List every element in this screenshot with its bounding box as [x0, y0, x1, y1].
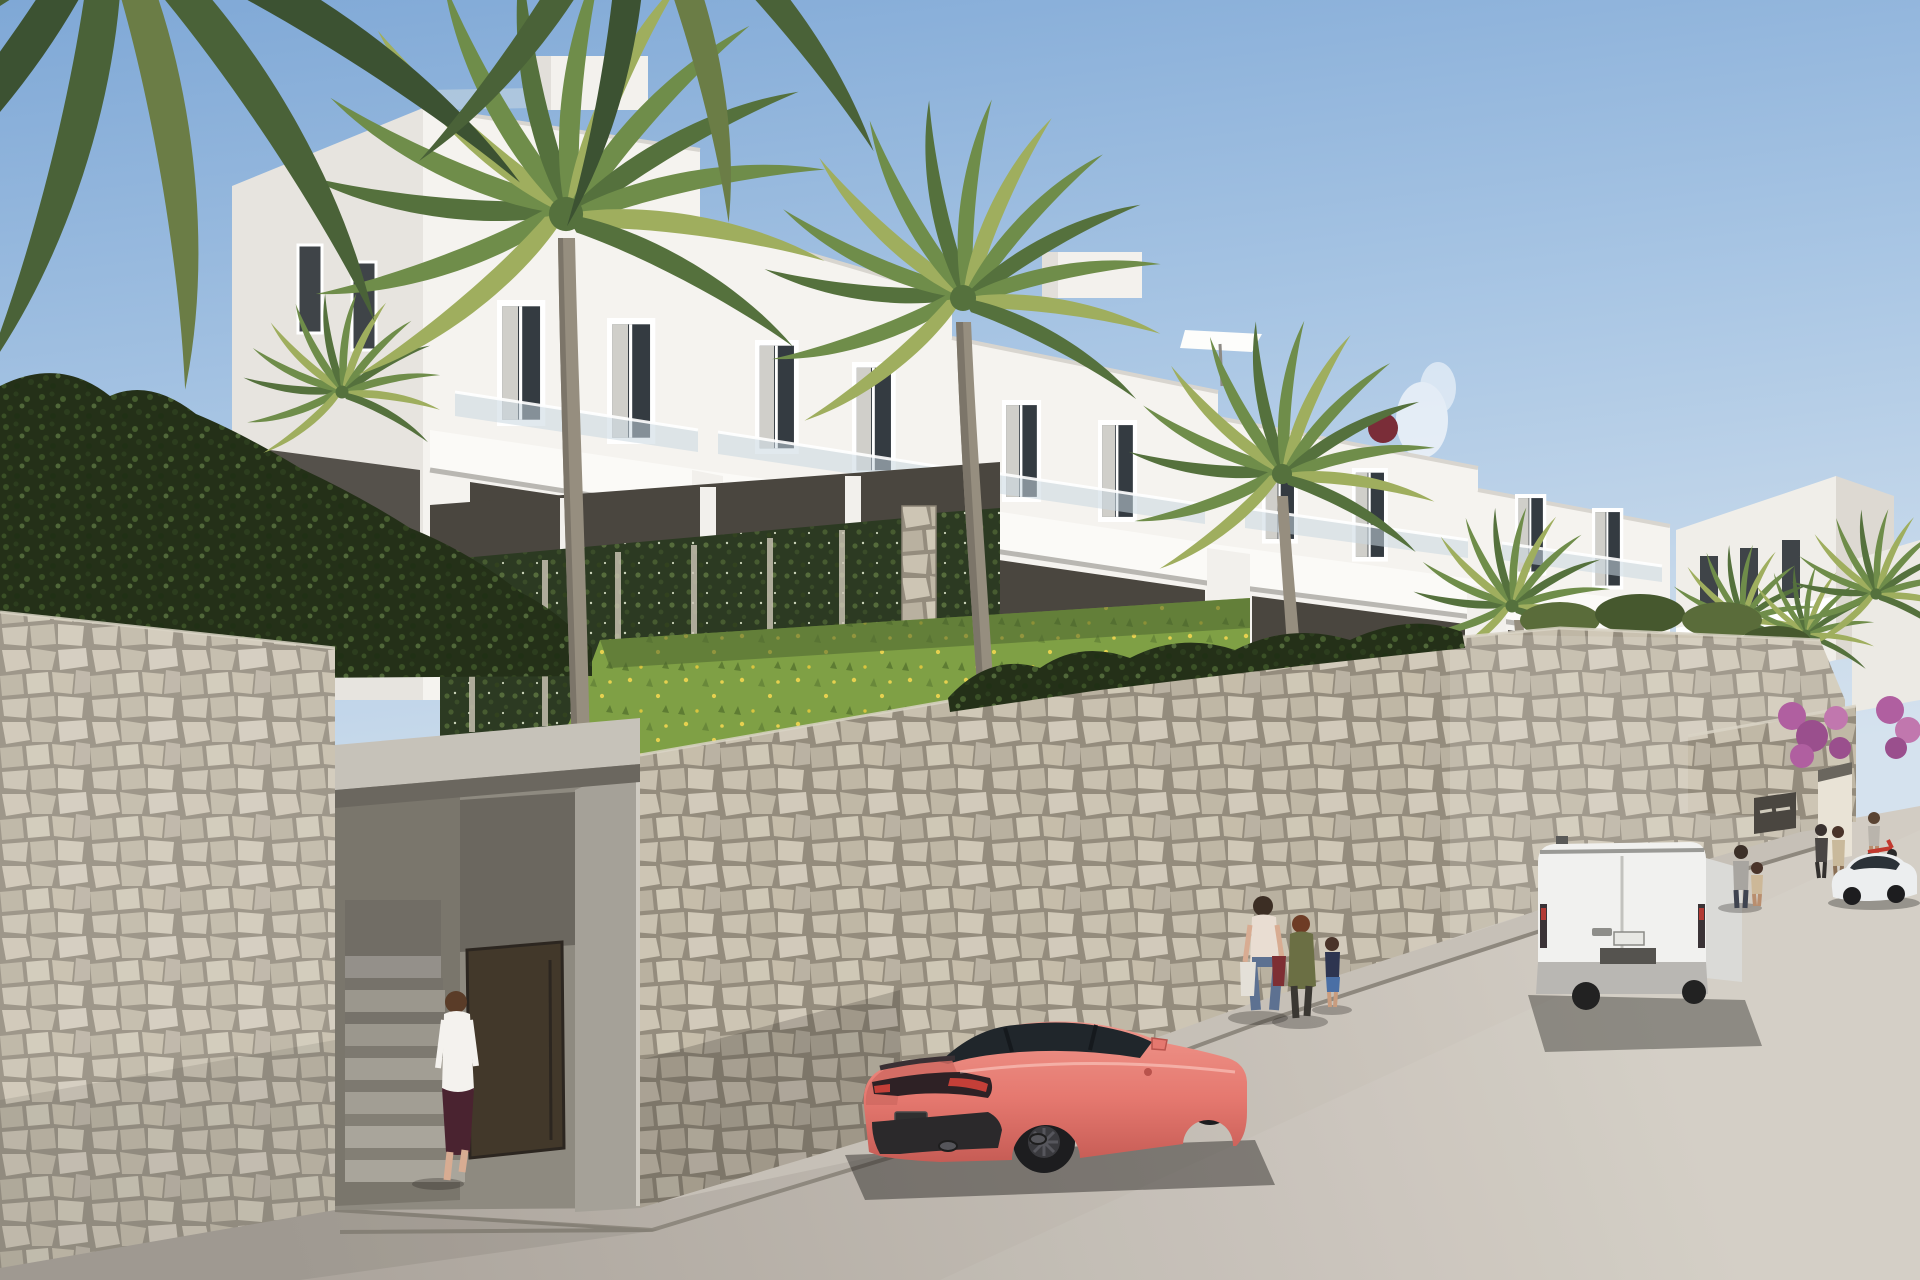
child-body [1751, 875, 1763, 894]
figure-body [1868, 826, 1880, 846]
stair-step [345, 956, 441, 978]
figure-head [1734, 845, 1748, 859]
van-wheel [1682, 980, 1706, 1004]
cloud-puff [1420, 362, 1456, 414]
scene [0, 0, 1920, 1280]
van-roof-trim [1540, 850, 1704, 852]
window [1592, 508, 1623, 590]
stair-riser [345, 1080, 455, 1092]
figure-head [1292, 915, 1310, 933]
child-head [1751, 862, 1763, 874]
child-shorts [1326, 977, 1340, 992]
van-bumper-step [1600, 948, 1656, 964]
shopping-bag [1240, 962, 1256, 996]
stair-riser [345, 1012, 447, 1024]
wall-sign-plaque [1754, 792, 1796, 834]
figure-head [1868, 812, 1880, 824]
sedan-wheel [1843, 887, 1861, 905]
figure-head [1815, 824, 1827, 836]
car-exhaust [939, 1141, 957, 1151]
figure-head [1253, 896, 1273, 916]
van-taillight-red [1699, 908, 1704, 920]
van-bumper [1536, 962, 1708, 994]
figure-body [1815, 838, 1828, 862]
shopping-bag-red [1272, 956, 1286, 986]
figure-head [1325, 937, 1339, 951]
car-exhaust [1030, 1134, 1046, 1144]
figure-shadow [1272, 1015, 1328, 1029]
figure-jacket [1288, 932, 1316, 990]
stair-riser [345, 1046, 451, 1058]
entrance-back-wall [460, 792, 575, 952]
stair-landing [345, 900, 441, 956]
sedan-wheel [1887, 885, 1905, 903]
figure-shadow [1312, 1005, 1352, 1015]
figure-head [1832, 826, 1844, 838]
child-top [1325, 952, 1340, 978]
van-taillight-red [1541, 908, 1546, 920]
stairwell-entrance [335, 718, 640, 1212]
figure-skirt [442, 1088, 474, 1155]
van-shadow [1528, 995, 1762, 1052]
entrance-right-jamb [575, 762, 640, 1212]
stair-riser [345, 1148, 463, 1160]
van-roof-light [1556, 836, 1568, 844]
van-license-plate [1614, 932, 1644, 945]
render-canvas [0, 0, 1920, 1280]
van-handle [1592, 928, 1612, 936]
stair-riser [345, 1114, 459, 1126]
car-mirror [1152, 1038, 1167, 1050]
figure-head [445, 991, 467, 1013]
stair-step [345, 1024, 449, 1046]
stair-step [345, 1092, 457, 1114]
figure-shadow [412, 1178, 464, 1190]
stair-step [345, 1126, 461, 1148]
stone-retaining-wall-left [0, 612, 335, 1268]
figure-body [1832, 840, 1845, 866]
stair-step [345, 990, 445, 1012]
figure-shirt [1733, 861, 1749, 890]
van-wheel [1572, 982, 1600, 1010]
sign-mark [1776, 808, 1790, 810]
white-panel-van [1528, 836, 1762, 1052]
car-door-handle [1144, 1068, 1152, 1076]
door-edge [550, 960, 551, 1140]
stair-riser [345, 978, 443, 990]
sign-mark [1760, 810, 1772, 812]
